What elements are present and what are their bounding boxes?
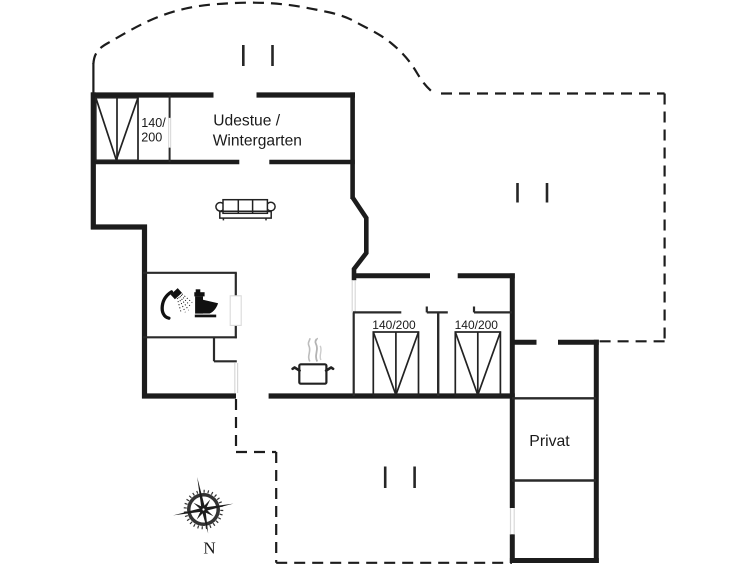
svg-text:140/200: 140/200 bbox=[372, 318, 416, 332]
svg-text:Wintergarten: Wintergarten bbox=[213, 132, 302, 149]
svg-text:200: 200 bbox=[141, 131, 162, 145]
svg-text:140/200: 140/200 bbox=[455, 318, 499, 332]
svg-text:140/: 140/ bbox=[141, 116, 166, 130]
svg-text:Privat: Privat bbox=[529, 433, 570, 450]
svg-text:N: N bbox=[203, 539, 215, 558]
svg-text:Udestue /: Udestue / bbox=[213, 113, 280, 130]
